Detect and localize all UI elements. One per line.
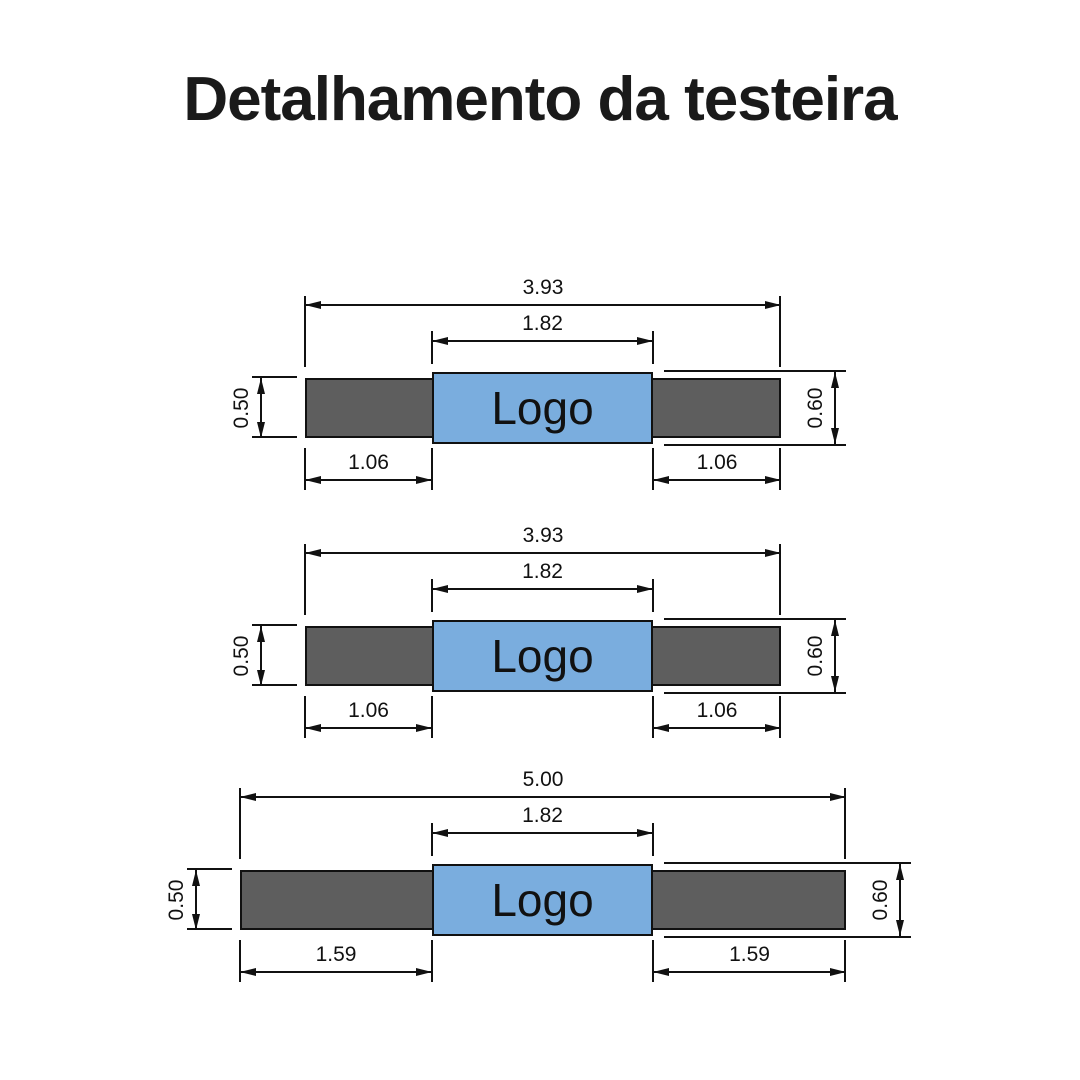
dimension-line xyxy=(240,796,846,798)
total-width-dimension: 5.00 xyxy=(240,796,846,798)
left-segment-dimension: 1.06 xyxy=(305,479,432,481)
dimension-line xyxy=(240,971,432,973)
logo-label: Logo xyxy=(491,381,593,435)
dimension-line xyxy=(305,552,781,554)
bar-height-value: 0.50 xyxy=(165,880,189,921)
arrowhead-right-icon xyxy=(637,585,653,593)
total-width-value: 3.93 xyxy=(305,276,781,300)
logo-height-dimension: 0.60 xyxy=(899,864,901,936)
total-width-value: 3.93 xyxy=(305,524,781,548)
right-segment-value: 1.06 xyxy=(653,451,781,475)
logo-width-dimension: 1.82 xyxy=(432,340,653,342)
bar-height-dimension: 0.50 xyxy=(260,378,262,438)
extension-line xyxy=(664,936,911,938)
extension-line xyxy=(664,862,911,864)
logo-width-value: 1.82 xyxy=(432,560,653,584)
left-segment-dimension: 1.06 xyxy=(305,727,432,729)
arrowhead-down-icon xyxy=(192,914,200,930)
dimension-line xyxy=(432,340,653,342)
right-segment-dimension: 1.59 xyxy=(653,971,846,973)
logo-height-dimension: 0.60 xyxy=(834,372,836,444)
right-segment-value: 1.59 xyxy=(653,943,846,967)
extension-line xyxy=(664,370,846,372)
arrowhead-right-icon xyxy=(765,724,781,732)
logo-panel: Logo xyxy=(432,864,653,936)
right-segment-value: 1.06 xyxy=(653,699,781,723)
dimension-line xyxy=(653,727,781,729)
logo-height-value: 0.60 xyxy=(804,636,828,677)
dimension-line xyxy=(432,832,653,834)
arrowhead-right-icon xyxy=(416,968,432,976)
bar-height-dimension: 0.50 xyxy=(260,626,262,686)
arrowhead-right-icon xyxy=(765,476,781,484)
logo-height-dimension: 0.60 xyxy=(834,620,836,692)
arrowhead-right-icon xyxy=(830,793,846,801)
extension-line xyxy=(664,692,846,694)
dimension-line xyxy=(432,588,653,590)
arrowhead-right-icon xyxy=(765,301,781,309)
logo-width-value: 1.82 xyxy=(432,312,653,336)
extension-line xyxy=(664,444,846,446)
total-width-value: 5.00 xyxy=(240,768,846,792)
extension-line xyxy=(664,618,846,620)
arrowhead-down-icon xyxy=(896,920,904,936)
logo-height-value: 0.60 xyxy=(869,880,893,921)
logo-height-value: 0.60 xyxy=(804,388,828,429)
total-width-dimension: 3.93 xyxy=(305,552,781,554)
logo-panel: Logo xyxy=(432,372,653,444)
total-width-dimension: 3.93 xyxy=(305,304,781,306)
logo-width-dimension: 1.82 xyxy=(432,832,653,834)
dimension-line xyxy=(305,479,432,481)
arrowhead-down-icon xyxy=(831,428,839,444)
bar-height-value: 0.50 xyxy=(230,388,254,429)
logo-label: Logo xyxy=(491,873,593,927)
arrowhead-down-icon xyxy=(257,670,265,686)
page-title: Detalhamento da testeira xyxy=(0,64,1080,135)
diagram-canvas: Detalhamento da testeira 3.93 1.82 Logo xyxy=(0,0,1080,1080)
arrowhead-down-icon xyxy=(831,676,839,692)
right-segment-dimension: 1.06 xyxy=(653,727,781,729)
bar-height-dimension: 0.50 xyxy=(195,870,197,930)
left-segment-value: 1.06 xyxy=(305,699,432,723)
logo-panel: Logo xyxy=(432,620,653,692)
left-segment-dimension: 1.59 xyxy=(240,971,432,973)
dimension-line xyxy=(653,479,781,481)
dimension-line xyxy=(305,727,432,729)
right-segment-dimension: 1.06 xyxy=(653,479,781,481)
left-segment-value: 1.59 xyxy=(240,943,432,967)
logo-label: Logo xyxy=(491,629,593,683)
logo-width-value: 1.82 xyxy=(432,804,653,828)
bar-height-value: 0.50 xyxy=(230,636,254,677)
left-segment-value: 1.06 xyxy=(305,451,432,475)
arrowhead-right-icon xyxy=(637,829,653,837)
dimension-line xyxy=(305,304,781,306)
arrowhead-right-icon xyxy=(637,337,653,345)
logo-width-dimension: 1.82 xyxy=(432,588,653,590)
dimension-line xyxy=(653,971,846,973)
arrowhead-down-icon xyxy=(257,422,265,438)
arrowhead-right-icon xyxy=(416,724,432,732)
arrowhead-right-icon xyxy=(830,968,846,976)
arrowhead-right-icon xyxy=(765,549,781,557)
arrowhead-right-icon xyxy=(416,476,432,484)
